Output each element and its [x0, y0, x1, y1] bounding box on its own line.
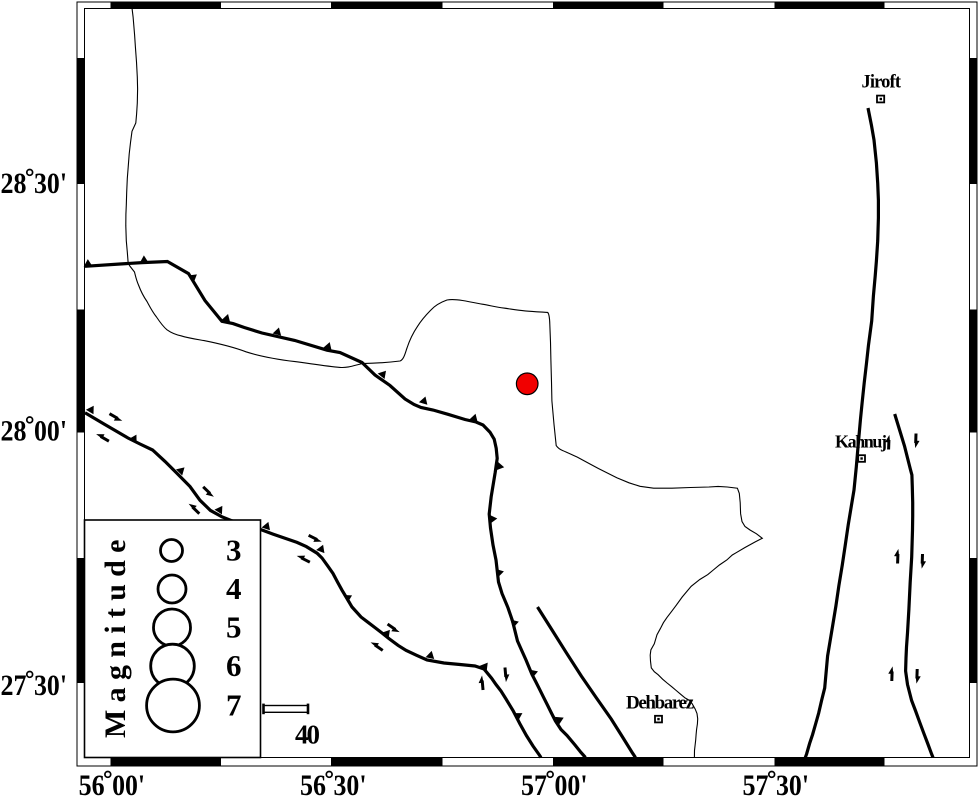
svg-text:00': 00'	[112, 770, 145, 796]
svg-text:7: 7	[226, 688, 242, 723]
svg-text:30': 30'	[34, 670, 67, 702]
svg-text:Magnitude: Magnitude	[99, 531, 132, 738]
svg-text:30': 30'	[34, 168, 67, 200]
svg-text:57: 57	[521, 770, 547, 796]
svg-text:28: 28	[1, 168, 27, 200]
svg-text:6: 6	[226, 648, 242, 683]
svg-text:30': 30'	[334, 770, 367, 796]
svg-text:5: 5	[226, 610, 242, 645]
svg-text:4: 4	[226, 571, 242, 606]
svg-text:28: 28	[1, 416, 27, 448]
svg-text:Dehbarez: Dehbarez	[626, 693, 695, 714]
svg-text:27: 27	[1, 670, 27, 702]
svg-text:3: 3	[226, 533, 242, 568]
svg-text:Jiroft: Jiroft	[862, 73, 902, 93]
svg-text:Kahnuj: Kahnuj	[835, 432, 887, 452]
svg-text:40: 40	[295, 720, 320, 750]
svg-text:30': 30'	[776, 770, 809, 796]
svg-text:00': 00'	[34, 416, 67, 448]
svg-text:57: 57	[743, 770, 769, 796]
svg-text:56: 56	[79, 770, 105, 796]
svg-text:00': 00'	[555, 770, 588, 796]
svg-text:56: 56	[300, 770, 326, 796]
